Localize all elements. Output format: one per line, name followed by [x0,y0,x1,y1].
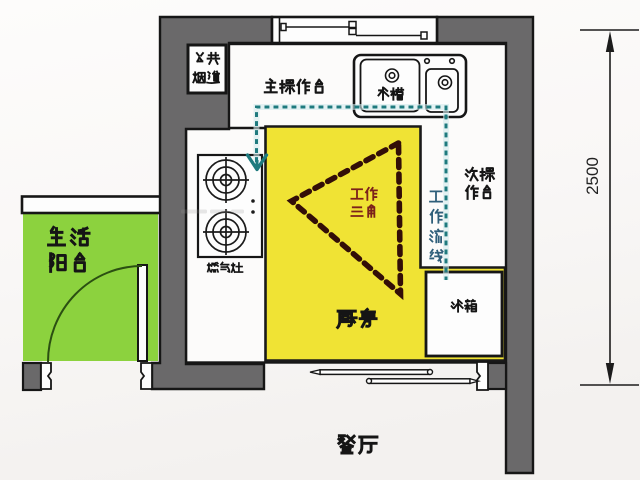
svg-text:2500: 2500 [583,157,602,195]
